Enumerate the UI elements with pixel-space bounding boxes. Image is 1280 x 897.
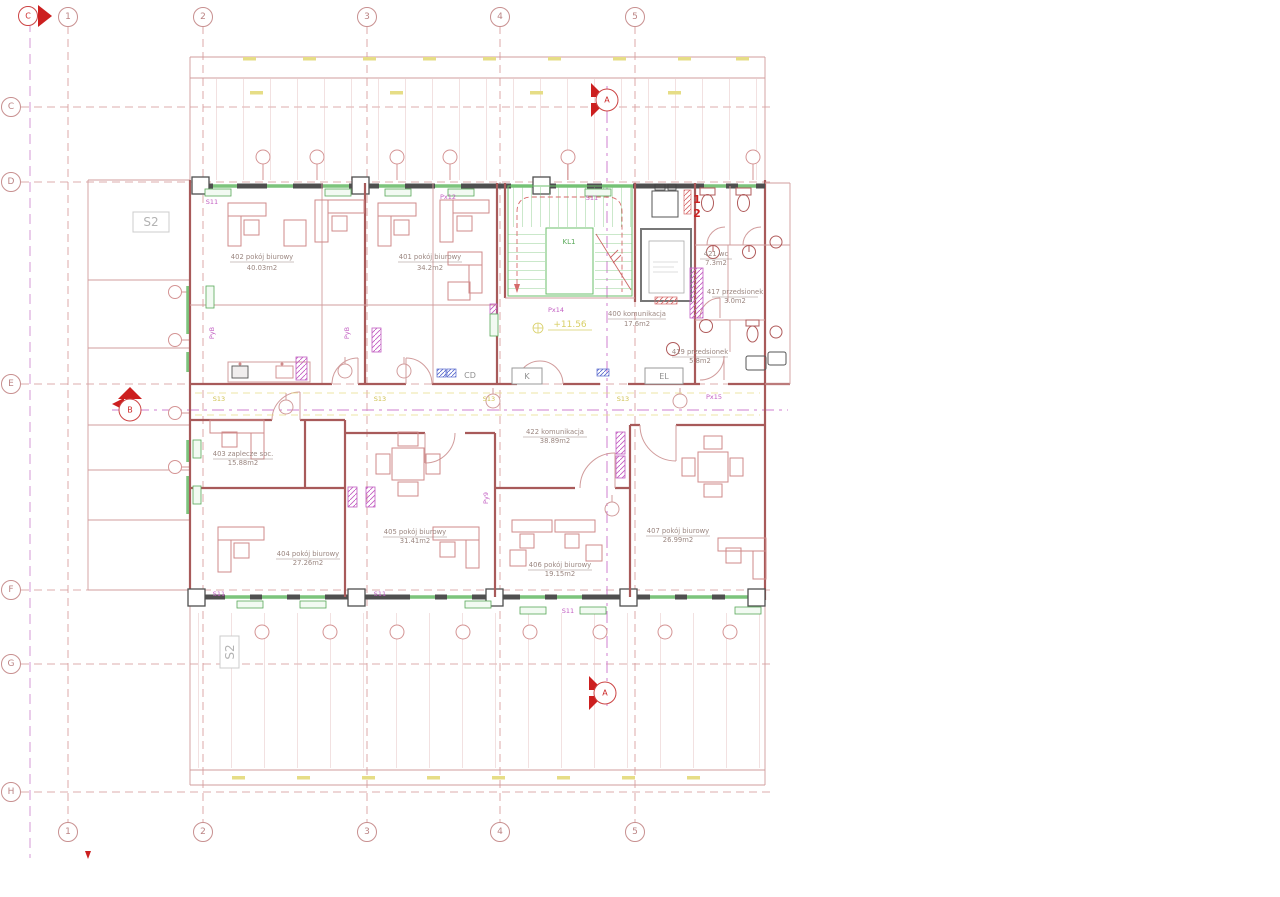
axis-px12: Px12	[440, 193, 456, 201]
cd-label: CD	[464, 371, 476, 380]
svg-text:31.41m2: 31.41m2	[400, 537, 430, 545]
grid-row-g: G	[8, 659, 15, 669]
window-tag-s11-5: S11	[562, 607, 574, 615]
room-401-label: 401 pokój biurowy34.2m2	[398, 253, 462, 272]
room-404-label: 404 pokój biurowy27.26m2	[276, 550, 340, 567]
floor-level-text: +11.56	[553, 320, 587, 330]
section-a-top-label: A	[604, 96, 610, 105]
svg-text:421 wc: 421 wc	[704, 250, 729, 258]
svg-text:401 pokój biurowy: 401 pokój biurowy	[399, 253, 461, 261]
svg-text:7.3m2: 7.3m2	[705, 259, 727, 267]
room-407-label: 407 pokój biurowy26.99m2	[646, 527, 710, 544]
svg-text:40.03m2: 40.03m2	[247, 264, 277, 272]
svg-text:404 pokój biurowy: 404 pokój biurowy	[277, 550, 339, 558]
axis-pyb-2: PyB	[343, 327, 351, 339]
grid-col-3-top: 3	[364, 12, 370, 22]
svg-text:5.8m2: 5.8m2	[689, 357, 711, 365]
grid-col-1-top: 1	[65, 12, 71, 22]
section-a-bottom-label: A	[602, 689, 608, 698]
room-421-label: 421 wc7.3m2	[700, 250, 732, 267]
grid-row-c: C	[8, 102, 14, 112]
room-405-label: 405 pokój biurowy31.41m2	[383, 528, 447, 545]
axis-px14: Px14	[548, 306, 564, 314]
wc-fixtures	[667, 188, 787, 370]
svg-text:19.15m2: 19.15m2	[545, 570, 575, 578]
svg-text:27.26m2: 27.26m2	[293, 559, 323, 567]
grid-col-4-bottom: 4	[497, 827, 503, 837]
grid-col-4-top: 4	[497, 12, 503, 22]
svg-text:417 przedsionek: 417 przedsionek	[707, 288, 763, 296]
window-tag-s11-2: S11	[586, 194, 598, 202]
roof-terrace-bottom	[190, 600, 765, 785]
wc-number-2: 2	[693, 207, 701, 220]
grid-row-f: F	[8, 585, 13, 595]
wc-number-1: 1	[693, 193, 701, 206]
left-wing	[88, 180, 190, 590]
window-tag-s11-1: S11	[206, 198, 218, 206]
axis-pyb-1: PyB	[208, 327, 216, 339]
window-tag-s13-3: S13	[483, 395, 495, 403]
room-402-label: 402 pokój biurowy40.03m2	[230, 253, 294, 272]
radiators	[296, 268, 703, 507]
kitchen-label: K	[524, 372, 530, 381]
svg-text:402 pokój biurowy: 402 pokój biurowy	[231, 253, 293, 261]
room-406-label: 406 pokój biurowy19.15m2	[528, 561, 592, 578]
floor-plan-canvas: +11.56 1 2 3 4 5 1 2 3 4 5 C D E F G H C…	[0, 0, 1280, 897]
zone-s2-bottom: S2	[223, 644, 237, 659]
elevator	[641, 184, 691, 304]
level-mark: +11.56	[533, 320, 592, 333]
section-c-marker-label: C	[25, 12, 31, 21]
svg-text:406 pokój biurowy: 406 pokój biurowy	[529, 561, 591, 569]
room-422-label: 422 komunikacja38.89m2	[523, 428, 587, 445]
grid-row-h: H	[8, 787, 15, 797]
roof-terrace-top	[190, 57, 765, 180]
electrical-label: EL	[659, 372, 669, 381]
window-tag-s11-3: S11	[213, 590, 225, 598]
svg-text:26.99m2: 26.99m2	[663, 536, 693, 544]
window-tag-s13-1: S13	[213, 395, 225, 403]
grid-row-e: E	[8, 379, 14, 389]
furniture	[210, 200, 766, 579]
svg-text:34.2m2: 34.2m2	[417, 264, 443, 272]
svg-text:403 zaplecze soc.: 403 zaplecze soc.	[213, 450, 274, 458]
room-417-label: 417 przedsionek3.0m2	[707, 288, 763, 305]
grid-row-d: D	[8, 177, 15, 187]
room-400-label: 400 komunikacja17.6m2	[608, 310, 666, 328]
svg-text:15.88m2: 15.88m2	[228, 459, 258, 467]
grid-col-5-top: 5	[632, 12, 638, 22]
svg-text:407 pokój biurowy: 407 pokój biurowy	[647, 527, 709, 535]
grid-col-1-bottom: 1	[65, 827, 71, 837]
walls	[188, 177, 790, 606]
stair-label: KL1	[563, 238, 576, 246]
svg-text:422 komunikacja: 422 komunikacja	[526, 428, 584, 436]
svg-text:400 komunikacja: 400 komunikacja	[608, 310, 666, 318]
axis-py9: Py9	[482, 492, 490, 504]
svg-text:405 pokój biurowy: 405 pokój biurowy	[384, 528, 446, 536]
grid-col-2-bottom: 2	[200, 827, 206, 837]
svg-text:419 przedsionek: 419 przedsionek	[672, 348, 728, 356]
floor-plan-drawing: +11.56 1 2 3 4 5 1 2 3 4 5 C D E F G H C…	[0, 0, 1280, 897]
axis-px15: Px15	[706, 393, 722, 401]
section-b-marker-label: B	[127, 406, 133, 415]
grid-col-5-bottom: 5	[632, 827, 638, 837]
svg-text:38.89m2: 38.89m2	[540, 437, 570, 445]
svg-text:3.0m2: 3.0m2	[724, 297, 746, 305]
svg-text:17.6m2: 17.6m2	[624, 320, 650, 328]
room-419-label: 419 przedsionek5.8m2	[672, 348, 728, 365]
window-tag-s11-4: S11	[374, 590, 386, 598]
window-tag-s13-2: S13	[374, 395, 386, 403]
zone-s2-top: S2	[143, 215, 158, 229]
grid-col-3-bottom: 3	[364, 827, 370, 837]
grid-col-2-top: 2	[200, 12, 206, 22]
room-labels: 402 pokój biurowy40.03m2 401 pokój biuro…	[213, 250, 763, 578]
window-tag-s13-4: S13	[617, 395, 629, 403]
